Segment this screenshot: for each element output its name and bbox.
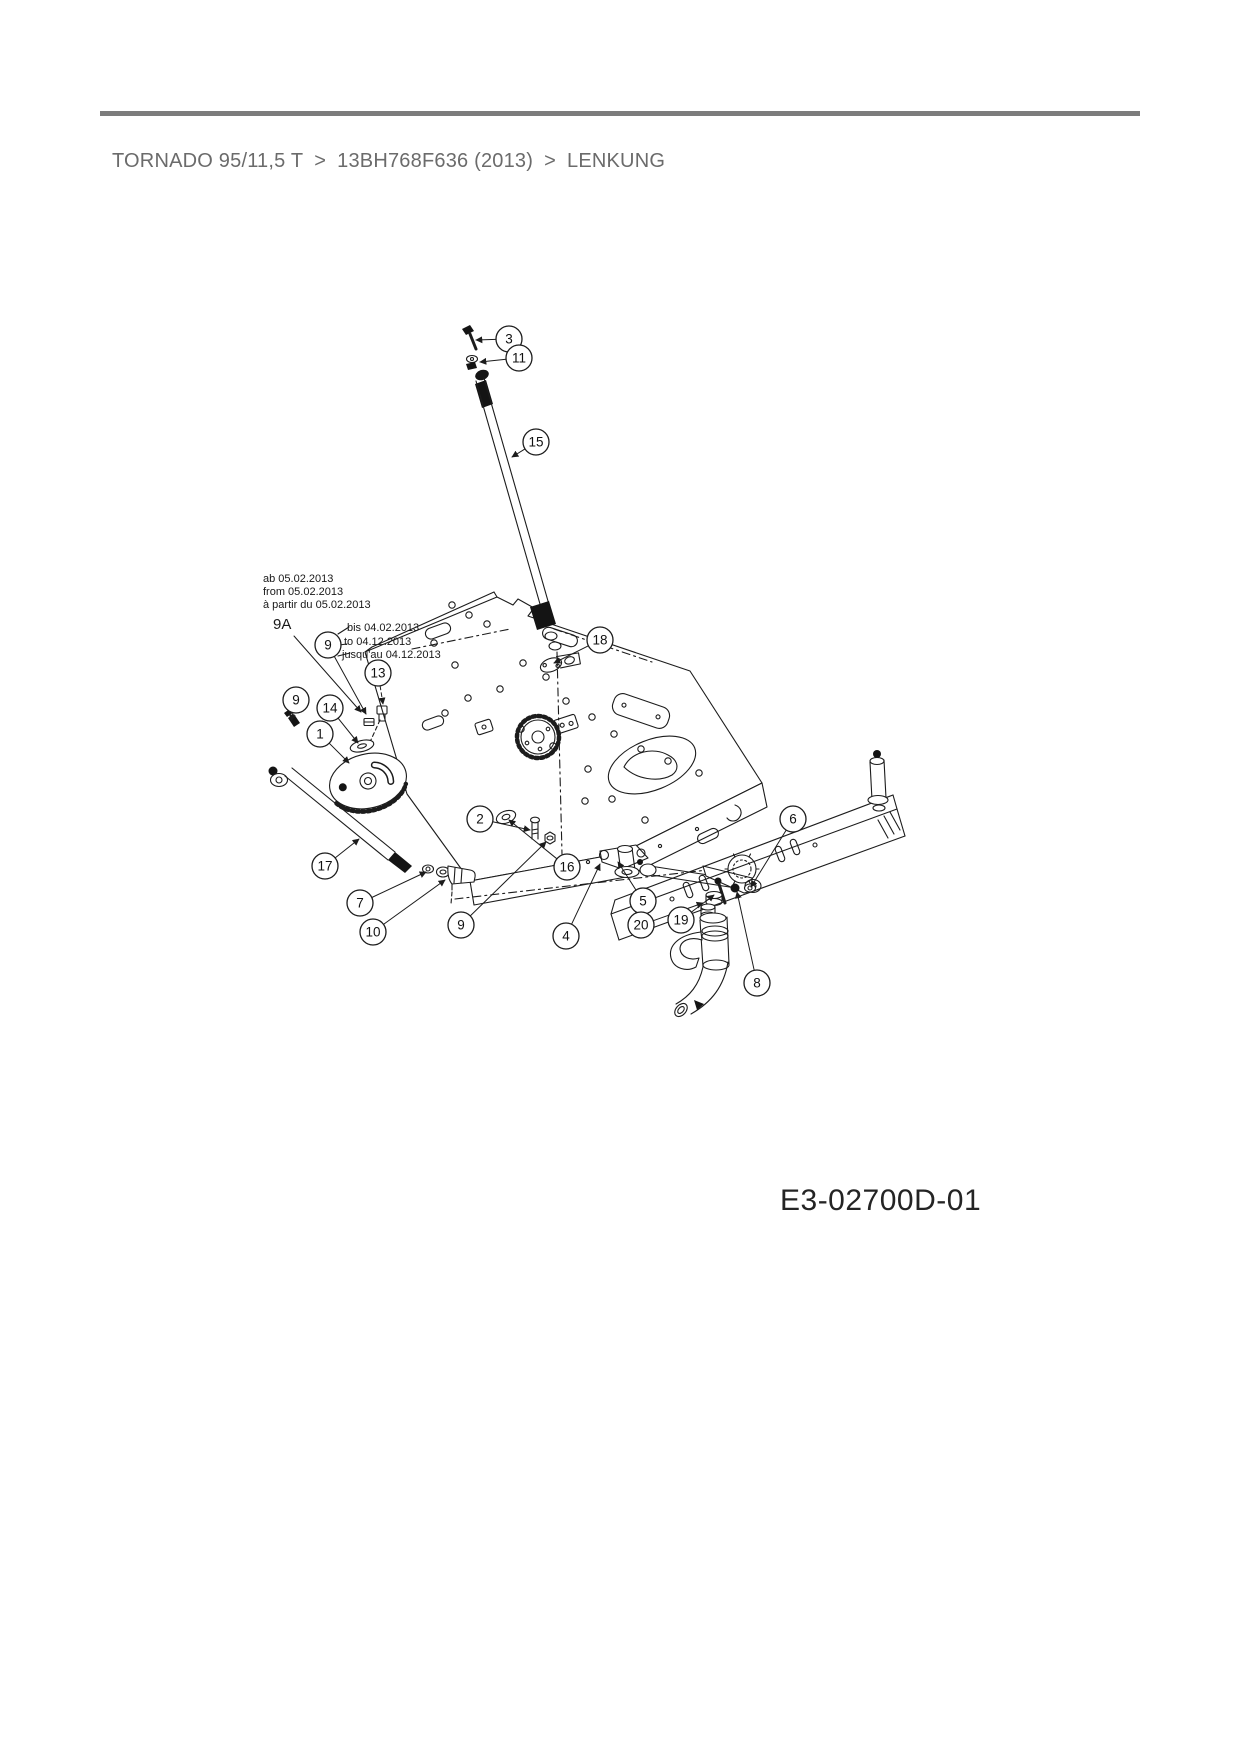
svg-text:jusqu'au 04.12.2013: jusqu'au 04.12.2013 (341, 649, 441, 661)
svg-text:17: 17 (317, 859, 332, 874)
svg-text:to 04.12.2013: to 04.12.2013 (344, 636, 411, 648)
svg-text:9: 9 (324, 638, 332, 653)
diagram-code: E3-02700D-01 (780, 1184, 981, 1218)
svg-text:bis 04.02.2013: bis 04.02.2013 (347, 622, 419, 634)
svg-text:from 05.02.2013: from 05.02.2013 (263, 586, 343, 598)
svg-text:à partir du 05.02.2013: à partir du 05.02.2013 (263, 599, 371, 611)
svg-text:15: 15 (528, 435, 543, 450)
callout-17: 17 (312, 839, 359, 879)
callout-7: 7 (347, 872, 426, 916)
steering-exploded-diagram: ab 05.02.2013 from 05.02.2013 à partir d… (0, 0, 1240, 1754)
svg-text:9A: 9A (273, 616, 291, 633)
svg-text:4: 4 (562, 929, 570, 944)
callout-8: 8 (737, 892, 770, 996)
svg-text:8: 8 (753, 976, 761, 991)
svg-text:3: 3 (505, 332, 513, 347)
right-spindle-top (868, 750, 888, 811)
date-annotation-from: ab 05.02.2013 from 05.02.2013 à partir d… (263, 573, 371, 611)
svg-text:7: 7 (356, 896, 364, 911)
svg-text:13: 13 (370, 666, 385, 681)
parts-catalog-page: TORNADO 95/11,5 T>13BH768F636 (2013)>LEN… (0, 0, 1240, 1754)
svg-text:ab 05.02.2013: ab 05.02.2013 (263, 573, 333, 585)
callout-10: 10 (360, 880, 445, 945)
svg-text:6: 6 (789, 812, 797, 827)
wheel-spindle (670, 878, 755, 1019)
svg-text:16: 16 (559, 860, 574, 875)
svg-text:1: 1 (316, 727, 324, 742)
svg-text:10: 10 (365, 925, 380, 940)
svg-text:5: 5 (639, 894, 647, 909)
svg-text:9: 9 (457, 918, 465, 933)
svg-text:19: 19 (673, 913, 688, 928)
svg-text:9: 9 (292, 693, 300, 708)
callout-1: 1 (307, 721, 349, 763)
drag-link (640, 864, 761, 893)
svg-text:18: 18 (592, 633, 607, 648)
svg-text:2: 2 (476, 812, 484, 827)
svg-text:20: 20 (633, 918, 648, 933)
svg-text:11: 11 (512, 351, 526, 366)
svg-text:14: 14 (322, 701, 338, 716)
callout-15: 15 (512, 429, 549, 457)
